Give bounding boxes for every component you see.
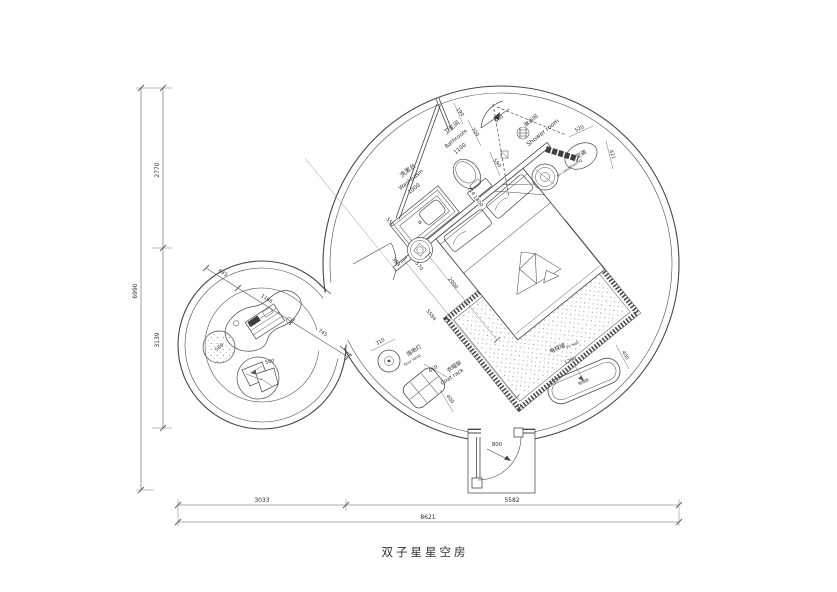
entrance	[468, 427, 535, 493]
ac-area	[532, 137, 602, 190]
dim-520: 520	[574, 124, 585, 133]
dim-660: 660	[428, 364, 439, 374]
floor-lamp	[378, 350, 400, 372]
dim-6990: 6990	[132, 283, 139, 298]
ac-label-cn: 空调	[574, 148, 588, 160]
dim-550: 550	[384, 217, 395, 228]
door-leaf-end	[472, 478, 482, 488]
dim-3139: 3139	[154, 332, 161, 347]
dim-400-coat: 400	[444, 394, 455, 405]
extension-line	[305, 158, 394, 268]
dim-700: 700	[469, 127, 480, 138]
floor-plan-page: 洗漱台 Washbasin 1000 卫生间 Bathroom 1100 淋浴间…	[0, 0, 837, 592]
door-leaf	[353, 243, 391, 264]
bedroom-bathroom-group	[367, 110, 668, 416]
dim-8621: 8621	[420, 514, 435, 521]
dim-800: 800	[492, 442, 503, 448]
dim-5584: 5584	[424, 309, 437, 323]
passage-door	[353, 243, 396, 280]
lounge-furniture	[203, 280, 311, 399]
floor-plan-canvas: 洗漱台 Washbasin 1000 卫生间 Bathroom 1100 淋浴间…	[0, 0, 837, 592]
dim-1166: 1166	[260, 293, 274, 305]
dim-590: 590	[491, 158, 502, 169]
floor-drain-icon	[517, 127, 529, 139]
dim-3033: 3033	[254, 497, 269, 504]
dim-310: 310	[375, 337, 386, 347]
dim-2770: 2770	[154, 162, 161, 177]
dim-500-shower: 500	[494, 114, 505, 125]
faucet	[418, 221, 421, 224]
dim-2000: 2000	[446, 277, 459, 291]
dim-421: 421	[607, 149, 616, 160]
dim-5582: 5582	[504, 497, 519, 504]
nightstand	[408, 238, 433, 263]
shower-label-cn: 淋浴间	[522, 112, 540, 129]
door-frame-block	[514, 428, 523, 437]
coat-rack	[400, 365, 447, 411]
dim-190: 190	[454, 107, 465, 118]
dim-1100: 1100	[453, 142, 468, 156]
shower-wall-segment	[546, 149, 578, 159]
ac-label-en: air conditioning	[556, 157, 584, 178]
drawing-title: 双子星星空房	[382, 545, 469, 559]
